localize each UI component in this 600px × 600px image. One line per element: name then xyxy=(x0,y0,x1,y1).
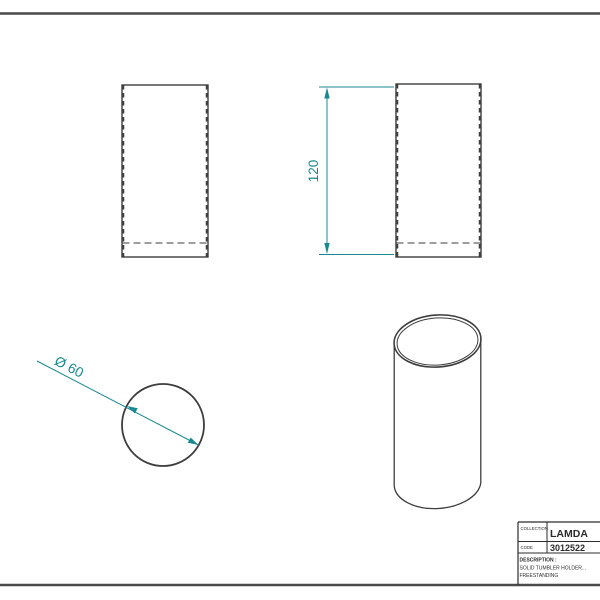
perspective-view-cylinder xyxy=(392,312,482,509)
title-block: COLLECTION LAMDA CODE 3012522 DESCRIPTIO… xyxy=(518,522,600,585)
diameter-dimension-line xyxy=(37,361,199,445)
diameter-dimension-label: Ø 60 xyxy=(52,352,86,380)
height-dimension-arrow-up-icon xyxy=(324,88,329,99)
code-label: CODE xyxy=(521,545,534,550)
front-view xyxy=(122,85,208,257)
height-dimension-arrow-down-icon xyxy=(324,243,329,254)
diameter-dimension-arrow-lower-icon xyxy=(188,438,199,446)
description-label: DESCRIPTION : xyxy=(520,558,558,564)
side-view xyxy=(396,84,481,257)
drawing-canvas: 120 Ø 60 COLLECTION LAMDA CODE 3012522 D… xyxy=(0,0,600,600)
height-dimension-label: 120 xyxy=(306,160,321,183)
top-view-circle xyxy=(122,384,204,466)
front-view-outline xyxy=(122,85,208,257)
code-value: 3012522 xyxy=(550,543,585,553)
collection-value: LAMDA xyxy=(550,528,588,540)
diameter-dimension: Ø 60 xyxy=(37,352,199,445)
side-view-outline xyxy=(396,84,481,257)
collection-label: COLLECTION xyxy=(521,526,548,531)
description-line2: FREESTANDING xyxy=(520,573,559,579)
cylinder-bottom-arc xyxy=(394,483,481,509)
cylinder-top-rim-outer xyxy=(392,312,482,370)
height-dimension: 120 xyxy=(306,87,394,255)
description-line1: SOLID TUMBLER HOLDER... xyxy=(520,566,587,572)
